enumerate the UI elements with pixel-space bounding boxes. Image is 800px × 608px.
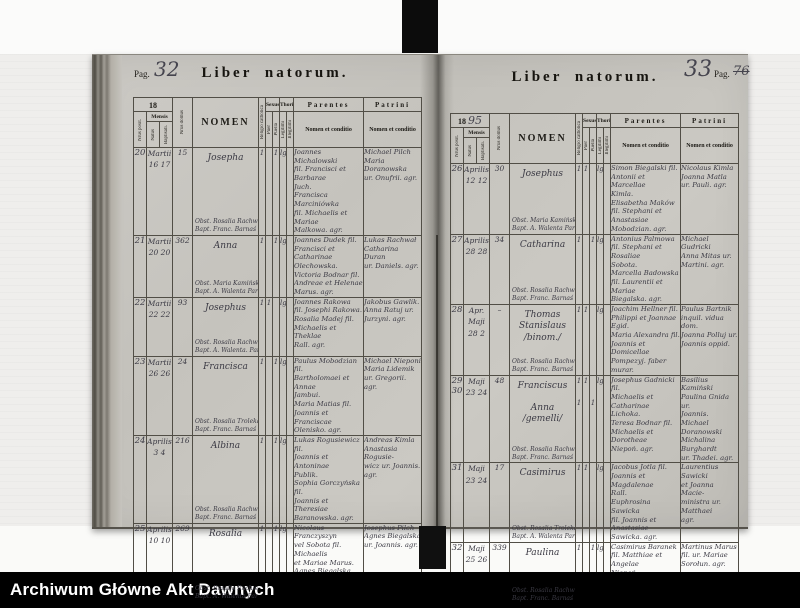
row-name-cell: Catharina Obst. Rosalia Rachwał Bapt. Fr…	[510, 234, 576, 305]
row-midwife-baptizer-note: Obst. Rosalia Rachwał. Bapt. Franc. Barn…	[512, 446, 576, 462]
register-book-scan: Pag. 32 Liber natorum. 18 Nrus domus NOM…	[92, 54, 748, 529]
row-midwife-baptizer-note: Obst. Rosalia Troleka Bapt. Franc. Barna…	[195, 418, 259, 434]
book-spine-edge	[92, 55, 122, 527]
row-puella-mark: 1	[590, 234, 597, 305]
right-page-title: Liber natorum.	[510, 69, 660, 86]
row-legitimi-mark: lg	[597, 305, 604, 376]
row-name-cell: Josephus Obst. Rosalia Rachwał Bapt. A. …	[193, 297, 259, 356]
row-name: Casimirus	[510, 468, 575, 479]
row-name: Catharina	[510, 240, 575, 251]
col-nrus-positi: Nrus posit.	[451, 128, 464, 164]
row-illegitimi-mark	[287, 435, 294, 523]
row-religio-mark: 1 1	[576, 375, 583, 463]
row-religio-mark: 1	[259, 148, 266, 236]
col-puella: Puella	[590, 128, 597, 164]
col-legitimi: Legitimi	[597, 128, 604, 164]
row-parentes: Antonius Palmowa fil. Stephani et Rosali…	[611, 234, 681, 305]
year-cell: 18	[134, 98, 173, 112]
row-illegitimi-mark	[604, 234, 611, 305]
row-puella-mark: 1	[273, 435, 280, 523]
col-illegitimi: Illegitimi	[287, 112, 294, 148]
row-puer-mark: 1	[266, 297, 273, 356]
left-page-title: Liber natorum.	[200, 65, 350, 82]
row-midwife-baptizer-note: Obst. Maria Kamińska Bapt. A. Walenta Pa…	[512, 217, 576, 233]
row-patrini: Basilius Kamiński Paulina Gnida ur. Joan…	[681, 375, 739, 463]
row-puella-mark: 1	[273, 148, 280, 236]
row-puella-mark	[590, 305, 597, 376]
left-pag-label: Pag.	[134, 69, 150, 79]
row-legitimi-mark: lg	[280, 435, 287, 523]
col-natus: Natus	[464, 138, 477, 164]
row-name: Albina	[193, 441, 258, 452]
row-serial-number: 24	[134, 435, 147, 523]
row-serial-number: 23	[134, 356, 147, 435]
col-baptisati: Baptisati.	[477, 138, 490, 164]
row-serial-number: 28	[451, 305, 464, 376]
table-body-left: 20 Martii 16 17 15 Josepha Obst. Rosalia…	[134, 148, 422, 603]
col-thori: Thori	[280, 98, 294, 112]
row-patrini: Andreas Kimla Anastasia Rogusie- wicz ur…	[364, 435, 422, 523]
row-house-number: –	[490, 305, 510, 376]
col-patrini: Patrini	[364, 98, 422, 112]
row-name: Anna	[193, 241, 258, 252]
row-serial-number: 31	[451, 463, 464, 542]
row-house-number: 93	[173, 297, 193, 356]
row-religio-mark: 1	[259, 297, 266, 356]
row-midwife-baptizer-note: Obst. Rosalia Rachwał Bapt. Franc. Barna…	[195, 218, 259, 234]
table-row: 27 Aprilis 28 28 34 Catharina Obst. Rosa…	[451, 234, 739, 305]
row-month-dates: Aprilis 3 4	[147, 435, 173, 523]
row-patrini: Laurentius Sawicki et Joanna Macie- mini…	[681, 463, 739, 542]
table-header: 18 Nrus domus NOMEN Religio catholica Se…	[134, 98, 422, 148]
row-parentes: Lukas Rogusiewicz fil. Joannis et Antoni…	[294, 435, 364, 523]
row-name-cell: Josepha Obst. Rosalia Rachwał Bapt. Fran…	[193, 148, 259, 236]
row-name-cell: Rosalia Obst. Rosalia Rachwał Bapt. A. W…	[193, 523, 259, 602]
table-row: 20 Martii 16 17 15 Josepha Obst. Rosalia…	[134, 148, 422, 236]
row-puer-mark	[583, 234, 590, 305]
row-house-number: 24	[173, 356, 193, 435]
right-pag-number-handwritten: 33	[684, 57, 712, 82]
row-religio-mark: 1	[259, 435, 266, 523]
row-name: Thomas Stanislaus /binom./	[510, 310, 575, 344]
row-puer-mark: 1	[583, 305, 590, 376]
col-thori: Thori	[597, 114, 611, 128]
col-nomen: NOMEN	[510, 114, 576, 164]
row-month-dates: Martii 20 20	[147, 235, 173, 297]
col-parentes: Parentes	[294, 98, 364, 112]
col-nrus-domus: Nrus domus	[490, 114, 510, 164]
row-legitimi-mark: lg	[597, 463, 604, 542]
row-illegitimi-mark	[287, 148, 294, 236]
row-month-dates: Aprilis 28 28	[464, 234, 490, 305]
row-puer-mark	[266, 148, 273, 236]
row-illegitimi-mark	[287, 356, 294, 435]
row-serial-number: 27	[451, 234, 464, 305]
row-religio-mark: 1	[259, 356, 266, 435]
row-name: Paulina	[510, 548, 575, 559]
row-month-dates: Maji 23 24	[464, 463, 490, 542]
table-row: 29 30 Maji 23 24 48 Franciscus Anna /gem…	[451, 375, 739, 463]
row-house-number: 48	[490, 375, 510, 463]
row-illegitimi-mark	[604, 164, 611, 235]
table-row: 31 Maji 23 24 17 Casimirus Obst. Rosalia…	[451, 463, 739, 542]
row-month-dates: Martii 26 26	[147, 356, 173, 435]
row-name: Francisca	[193, 362, 258, 373]
register-table-right: 18 95 Nrus domus NOMEN Religio catholica…	[450, 113, 739, 604]
left-pag-number-handwritten: 32	[154, 57, 179, 81]
row-name: Josepha	[193, 153, 258, 164]
table-row: 23 Martii 26 26 24 Francisca Obst. Rosal…	[134, 356, 422, 435]
col-mensis: Mensis	[147, 112, 173, 122]
col-nomen: NOMEN	[193, 98, 259, 148]
row-legitimi-mark: lg	[280, 235, 287, 297]
row-religio-mark: 1	[576, 305, 583, 376]
year-cell: 18 95	[451, 114, 490, 128]
col-puer: Puer	[266, 112, 273, 148]
row-midwife-baptizer-note: Obst. Rosalia Troleka Bapt. A. Walenta P…	[512, 525, 576, 541]
row-house-number: 15	[173, 148, 193, 236]
table-row: 26 Aprilis 12 12 30 Josephus Obst. Maria…	[451, 164, 739, 235]
row-midwife-baptizer-note: Obst. Rosalia Rachwał Bapt. A. Walenta P…	[195, 585, 259, 601]
row-midwife-baptizer-note: Obst. Rosalia Rachwał Bapt. Franc. Barna…	[512, 587, 576, 603]
row-patrini: Michael Gudricki Anna Mitas ur. Martini.…	[681, 234, 739, 305]
row-month-dates: Apr. Maji 28 2	[464, 305, 490, 376]
row-legitimi-mark: lg	[280, 148, 287, 236]
row-legitimi-mark: lg	[280, 356, 287, 435]
col-baptisati: Baptisati.	[160, 122, 173, 148]
table-row: 24 Aprilis 3 4 216 Albina Obst. Rosalia …	[134, 435, 422, 523]
year-handwritten: 95	[468, 114, 482, 127]
table-header: 18 95 Nrus domus NOMEN Religio catholica…	[451, 114, 739, 164]
row-name: Franciscus Anna /gemelli/	[510, 381, 575, 426]
col-nrus-positi: Nrus posit.	[134, 112, 147, 148]
row-parentes: Josephus Gadnicki fil. Michaelis et Cath…	[611, 375, 681, 463]
row-puer-mark: 1	[583, 375, 590, 463]
row-parentes: Jacobus Jotla fil. Joannis et Magdalenae…	[611, 463, 681, 542]
col-illegitimi: Illegitimi	[604, 128, 611, 164]
row-month-dates: Aprilis 12 12	[464, 164, 490, 235]
row-name: Rosalia	[193, 529, 258, 540]
row-serial-number: 29 30	[451, 375, 464, 463]
row-legitimi-mark: lg	[597, 375, 604, 463]
row-serial-number: 20	[134, 148, 147, 236]
row-serial-number: 21	[134, 235, 147, 297]
row-puella-mark	[590, 164, 597, 235]
row-religio-mark: 1	[259, 235, 266, 297]
row-legitimi-mark: lg	[597, 164, 604, 235]
col-religio: Religio catholica	[576, 114, 583, 164]
right-pag-label: Pag.	[714, 69, 730, 79]
film-splice-mark-top	[402, 0, 438, 53]
row-name-cell: Francisca Obst. Rosalia Troleka Bapt. Fr…	[193, 356, 259, 435]
archive-scan-viewer: { "footer": { "archive_label": "Archiwum…	[0, 0, 800, 608]
col-sexus: Sexus	[583, 114, 597, 128]
row-serial-number: 26	[451, 164, 464, 235]
row-legitimi-mark: lg	[280, 297, 287, 356]
row-puer-mark: 1	[583, 164, 590, 235]
row-puella-mark: 1	[590, 375, 597, 463]
row-puella-mark	[590, 463, 597, 542]
row-patrini: Paulus Bartnik inquil. vidua dom. Joanna…	[681, 305, 739, 376]
col-sexus: Sexus	[266, 98, 280, 112]
col-parentes-sub: Nomen et conditio	[294, 112, 364, 148]
row-house-number: 216	[173, 435, 193, 523]
col-mensis: Mensis	[464, 128, 490, 138]
row-patrini: Lukas Rachwał Catharina Duran ur. Daniel…	[364, 235, 422, 297]
row-religio-mark: 1	[576, 234, 583, 305]
row-midwife-baptizer-note: Obst. Rosalia Rachwał Bapt. Franc. Barna…	[195, 506, 259, 522]
row-house-number: 30	[490, 164, 510, 235]
row-patrini: Jakobus Gawlik. Anna Ratuj ur. Jurzyni. …	[364, 297, 422, 356]
row-name-cell: Josephus Obst. Maria Kamińska Bapt. A. W…	[510, 164, 576, 235]
row-patrini: Nicolaus Kimla Joanna Matla ur. Pauli. a…	[681, 164, 739, 235]
table-row: 28 Apr. Maji 28 2 – Thomas Stanislaus /b…	[451, 305, 739, 376]
row-house-number: 17	[490, 463, 510, 542]
row-midwife-baptizer-note: Obst. Maria Kamińska Bapt. A. Walenta Pa…	[195, 280, 259, 296]
row-parentes: Joachim Hellner fil. Philippi et Joannae…	[611, 305, 681, 376]
row-puer-mark	[266, 435, 273, 523]
row-parentes: Simon Biegalski fil. Antonii et Marcella…	[611, 164, 681, 235]
table-row: 22 Martii 22 22 93 Josephus Obst. Rosali…	[134, 297, 422, 356]
col-parentes: Parentes	[611, 114, 681, 128]
col-legitimi: Legitimi	[280, 112, 287, 148]
table-body-right: 26 Aprilis 12 12 30 Josephus Obst. Maria…	[451, 164, 739, 604]
row-midwife-baptizer-note: Obst. Rosalia Rachwał Bapt. A. Walenta. …	[195, 339, 259, 355]
row-name-cell: Franciscus Anna /gemelli/ Obst. Rosalia …	[510, 375, 576, 463]
table-row: 21 Martii 20 20 362 Anna Obst. Maria Kam…	[134, 235, 422, 297]
col-nrus-domus: Nrus domus	[173, 98, 193, 148]
row-illegitimi-mark	[604, 305, 611, 376]
row-name: Josephus	[510, 169, 575, 180]
col-patrini-sub: Nomen et conditio	[681, 128, 739, 164]
col-natus: Natus	[147, 122, 160, 148]
row-parentes: Joannes Dudek fil. Francisci et Catharin…	[294, 235, 364, 297]
col-patrini: Patrini	[681, 114, 739, 128]
row-month-dates: Maji 23 24	[464, 375, 490, 463]
row-house-number: 362	[173, 235, 193, 297]
row-name-cell: Casimirus Obst. Rosalia Troleka Bapt. A.…	[510, 463, 576, 542]
row-name-cell: Anna Obst. Maria Kamińska Bapt. A. Walen…	[193, 235, 259, 297]
row-religio-mark: 1	[576, 463, 583, 542]
row-legitimi-mark: lg	[597, 234, 604, 305]
archive-watermark-bar: Archiwum Główne Akt Dawnych	[0, 572, 800, 608]
row-name-cell: Thomas Stanislaus /binom./ Obst. Rosalia…	[510, 305, 576, 376]
right-pag-number-struck: 76	[733, 64, 750, 79]
row-puer-mark	[266, 356, 273, 435]
row-serial-number: 22	[134, 297, 147, 356]
row-illegitimi-mark	[287, 297, 294, 356]
row-puer-mark: 1	[583, 463, 590, 542]
row-puella-mark: 1	[273, 235, 280, 297]
col-puella: Puella	[273, 112, 280, 148]
row-religio-mark: 1	[576, 164, 583, 235]
col-religio: Religio catholica	[259, 98, 266, 148]
row-patrini: Michael Pilch Maria Doranowska ur. Onufr…	[364, 148, 422, 236]
book-gutter-line	[436, 235, 438, 527]
row-illegitimi-mark	[287, 235, 294, 297]
row-name-cell: Albina Obst. Rosalia Rachwał Bapt. Franc…	[193, 435, 259, 523]
row-illegitimi-mark	[604, 375, 611, 463]
row-name: Josephus	[193, 303, 258, 314]
row-month-dates: Martii 16 17	[147, 148, 173, 236]
row-month-dates: Martii 22 22	[147, 297, 173, 356]
row-puer-mark	[266, 235, 273, 297]
col-parentes-sub: Nomen et conditio	[611, 128, 681, 164]
row-puella-mark: 1	[273, 356, 280, 435]
row-midwife-baptizer-note: Obst. Rosalia Rachwał Bapt. Franc. Barna…	[512, 358, 576, 374]
register-table-left: 18 Nrus domus NOMEN Religio catholica Se…	[133, 97, 422, 603]
row-patrini: Michael Nieponi Maria Lidemik ur. Gregor…	[364, 356, 422, 435]
row-parentes: Joannes Michalowski fil. Francisci et Ba…	[294, 148, 364, 236]
col-patrini-sub: Nomen et conditio	[364, 112, 422, 148]
film-splice-mark-bottom	[419, 526, 446, 569]
row-puella-mark	[273, 297, 280, 356]
scan-background-top	[0, 0, 800, 54]
col-puer: Puer	[583, 128, 590, 164]
row-parentes: Paulus Mobodzian fil. Bartholomaei et An…	[294, 356, 364, 435]
row-house-number: 34	[490, 234, 510, 305]
row-midwife-baptizer-note: Obst. Rosalia Rachwał Bapt. Franc. Barna…	[512, 287, 576, 303]
row-parentes: Joannes Rakowa fil. Josephi Rakowa. Rosa…	[294, 297, 364, 356]
row-illegitimi-mark	[604, 463, 611, 542]
